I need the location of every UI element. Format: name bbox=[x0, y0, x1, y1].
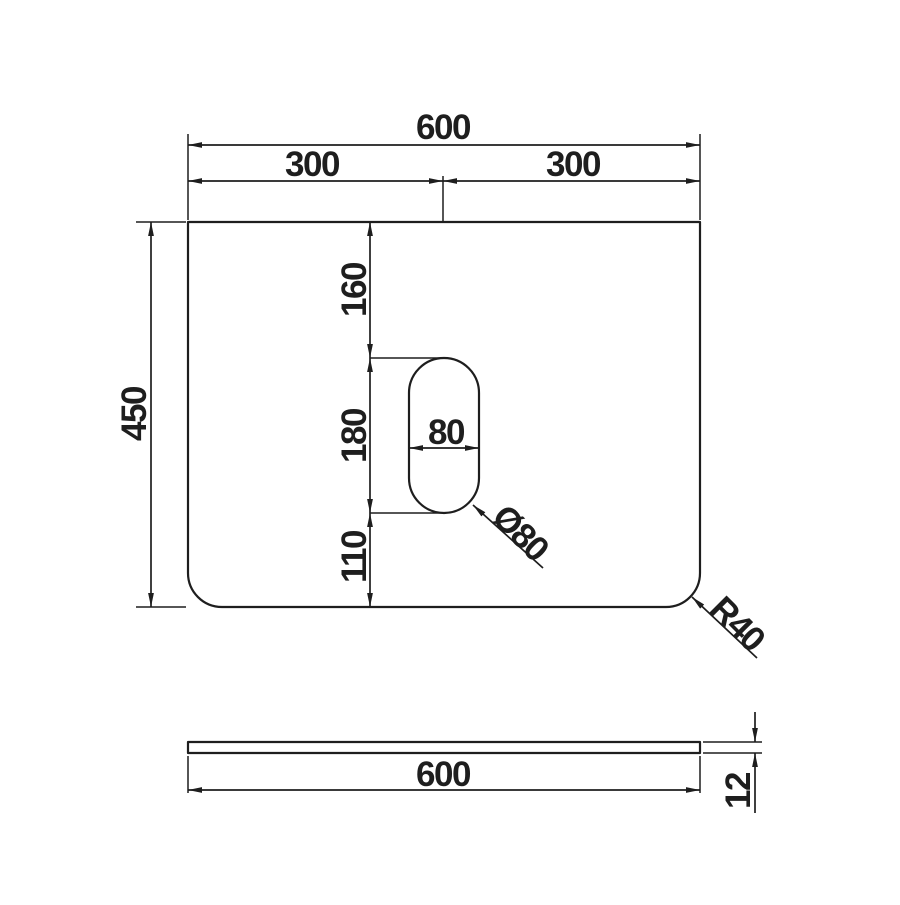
dim-text-overall-width: 600 bbox=[416, 108, 471, 147]
dim-half-widths: 300 300 bbox=[188, 145, 700, 222]
dim-text-corner-radius: R40 bbox=[702, 589, 773, 660]
top-view: 600 300 300 450 bbox=[115, 108, 773, 659]
dim-text-overall-height: 450 bbox=[115, 386, 154, 441]
dim-text-slot-length: 180 bbox=[335, 408, 374, 463]
dim-text-top-to-slot: 160 bbox=[335, 262, 374, 317]
dimension-drawing: 600 300 300 450 bbox=[0, 0, 900, 900]
dim-text-slot-to-bottom: 110 bbox=[335, 530, 374, 583]
dim-profile-width: 600 bbox=[188, 755, 700, 794]
dim-text-right-half: 300 bbox=[546, 145, 601, 184]
side-view: 600 12 bbox=[188, 712, 762, 813]
leader-corner-radius: R40 bbox=[692, 589, 773, 660]
dim-text-left-half: 300 bbox=[285, 145, 340, 184]
dim-overall-width: 600 bbox=[188, 108, 700, 220]
dim-text-slot-width: 80 bbox=[428, 413, 465, 452]
dim-overall-height: 450 bbox=[115, 222, 186, 607]
technical-drawing-page: 600 300 300 450 bbox=[0, 0, 900, 900]
dim-text-thickness: 12 bbox=[719, 772, 758, 809]
dim-thickness: 12 bbox=[703, 712, 762, 813]
profile-outline bbox=[188, 742, 700, 753]
dim-text-profile-width: 600 bbox=[416, 755, 471, 794]
